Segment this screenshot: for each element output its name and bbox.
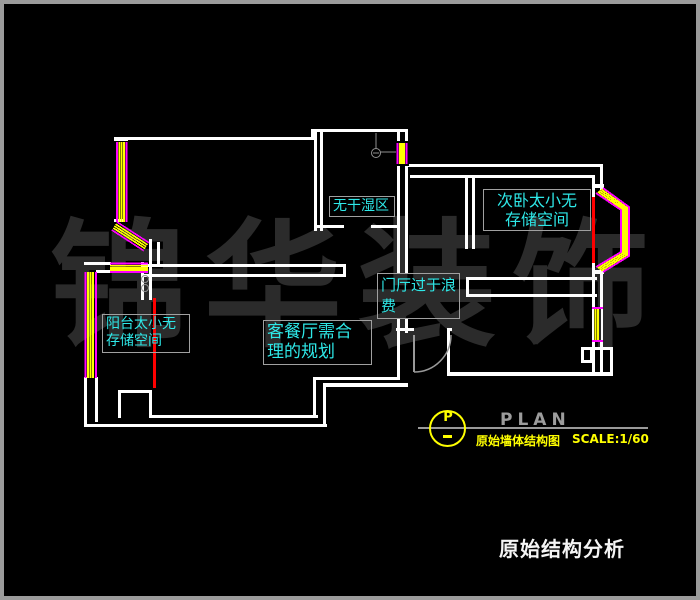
window-left-bay-diagonal [112,222,149,251]
note-living: 客餐厅需合 理的规划 [263,320,372,365]
floor-plan-drawing [0,0,700,600]
note-bedroom-line2: 存储空间 [487,210,587,229]
window-left-bay [117,142,127,222]
drawing-name: 原始墙体结构图 [476,432,560,449]
note-entry-line2: 费 [381,296,456,317]
plan-label: PLAN [500,410,571,430]
drawing-scale: SCALE:1/60 [572,432,649,449]
note-bedroom-line1: 次卧太小无 [487,191,587,210]
drawing-caption: 原始墙体结构图 SCALE:1/60 [476,432,649,449]
plan-symbol-dash [443,435,452,438]
plumbing-symbol-bathroom [372,133,397,158]
note-living-line1: 客餐厅需合 [267,322,368,342]
note-bathroom-text: 无干湿区 [333,198,391,215]
note-balcony-line1: 阳台太小无 [106,316,186,333]
note-entry: 门厅过于浪 费 [377,273,460,319]
plan-symbol-letter: P [437,410,459,426]
entry-door-swing [414,335,451,372]
note-bathroom: 无干湿区 [329,196,395,217]
cad-viewport: 锦华装饰 [0,0,700,600]
note-bedroom: 次卧太小无 存储空间 [483,189,591,231]
sheet-title: 原始结构分析 [499,533,625,562]
note-living-line2: 理的规划 [267,342,368,362]
note-entry-line1: 门厅过于浪 [381,275,456,296]
window-balcony-left [86,272,97,378]
note-balcony-line2: 存储空间 [106,333,186,350]
walls [84,129,613,427]
window-right-lower [592,307,603,342]
window-bathroom [395,141,409,166]
note-balcony: 阳台太小无 存储空间 [102,314,190,353]
window-bedroom-bay [596,188,629,272]
